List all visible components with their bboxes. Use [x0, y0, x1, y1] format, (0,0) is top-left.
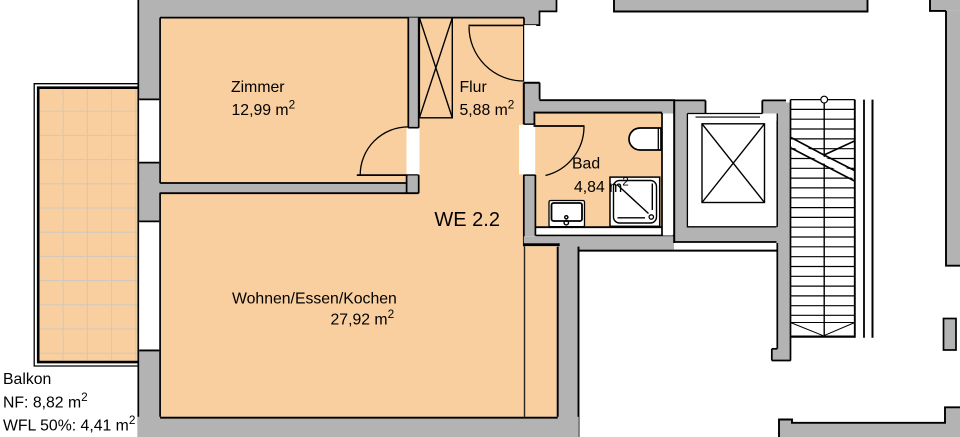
svg-text:Flur: Flur: [460, 79, 487, 96]
svg-text:Zimmer: Zimmer: [231, 79, 285, 96]
svg-text:WE 2.2: WE 2.2: [434, 209, 500, 231]
svg-text:Wohnen/Essen/Kochen: Wohnen/Essen/Kochen: [232, 290, 397, 307]
svg-text:Balkon: Balkon: [3, 371, 51, 388]
svg-text:Bad: Bad: [572, 155, 600, 172]
